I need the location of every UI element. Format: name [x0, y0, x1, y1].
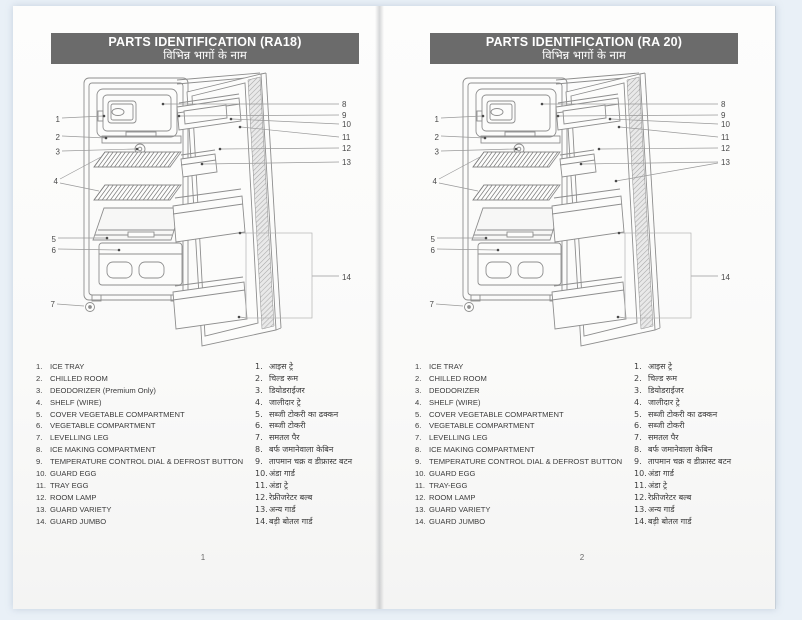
parts-list-item-label: SHELF (WIRE)	[429, 397, 480, 409]
parts-list-item-label: आइस ट्रे	[269, 361, 293, 373]
parts-list-item-label: GUARD EGG	[429, 468, 475, 480]
parts-list-hindi: 1.आइस ट्रे2.चिल्ड रूम3.डियोडराईजर4.जालीद…	[255, 361, 381, 527]
parts-list-item-number: 8.	[255, 444, 269, 456]
fridge-cabinet	[84, 78, 188, 312]
parts-list-item: 2.चिल्ड रूम	[255, 373, 381, 385]
parts-list-item-label: अन्य गार्ड	[269, 504, 296, 516]
parts-list-item-number: 6.	[415, 420, 429, 432]
parts-list-item-number: 4.	[255, 397, 269, 409]
parts-list-item-number: 9.	[255, 456, 269, 468]
parts-list-item-label: चिल्ड रूम	[648, 373, 677, 385]
parts-list-item: 9.तापमान चक्र व डीफ्रास्ट बटन	[255, 456, 381, 468]
parts-list-item: 3.डियोडराईजर	[255, 385, 381, 397]
parts-list-english: 1.ICE TRAY2.CHILLED ROOM3.DEODORIZER (Pr…	[36, 361, 252, 527]
parts-list-item-number: 3.	[255, 385, 269, 397]
parts-list-item-number: 12.	[634, 492, 648, 504]
parts-list-item: 13.GUARD VARIETY	[36, 504, 252, 516]
parts-list-item: 13.अन्य गार्ड	[255, 504, 381, 516]
parts-list-item: 12.ROOM LAMP	[36, 492, 252, 504]
svg-text:3: 3	[435, 148, 440, 157]
svg-text:5: 5	[52, 235, 57, 244]
fridge-cabinet	[463, 78, 567, 312]
svg-text:2: 2	[56, 133, 61, 142]
parts-list-item-label: DEODORIZER	[429, 385, 480, 397]
parts-list-item-label: डियोडराईजर	[648, 385, 684, 397]
parts-list-item-number: 7.	[634, 432, 648, 444]
parts-list-item-number: 3.	[634, 385, 648, 397]
manual-spread: PARTS IDENTIFICATION (RA18) विभिन्न भागो…	[13, 6, 776, 609]
parts-list-item-number: 10.	[634, 468, 648, 480]
parts-list-item-label: CHILLED ROOM	[429, 373, 487, 385]
parts-list-item-label: TRAY-EGG	[429, 480, 467, 492]
parts-list-item-number: 13.	[634, 504, 648, 516]
parts-list-item: 3.डियोडराईजर	[634, 385, 760, 397]
svg-text:10: 10	[342, 120, 351, 129]
parts-list-item-number: 5.	[415, 409, 429, 421]
parts-list-item-number: 13.	[255, 504, 269, 516]
parts-list-item: 12.ROOM LAMP	[415, 492, 631, 504]
parts-list-item-number: 11.	[36, 480, 50, 492]
fridge-door	[173, 73, 281, 346]
parts-list-item-number: 13.	[36, 504, 50, 516]
parts-list-item-label: तापमान चक्र व डीफ्रास्ट बटन	[269, 456, 352, 468]
page-number: 1	[13, 553, 393, 562]
page-title: PARTS IDENTIFICATION (RA 20)	[430, 35, 738, 49]
parts-list-item: 3.DEODORIZER	[415, 385, 631, 397]
parts-list-item-label: आइस ट्रे	[648, 361, 672, 373]
parts-list-item-number: 4.	[36, 397, 50, 409]
parts-list-item-number: 2.	[634, 373, 648, 385]
fridge-door	[552, 73, 660, 346]
parts-list-item: 7.समतल पैर	[634, 432, 760, 444]
parts-list-item-number: 10.	[255, 468, 269, 480]
svg-text:6: 6	[431, 246, 436, 255]
svg-text:7: 7	[430, 300, 435, 309]
parts-list-item-label: DEODORIZER (Premium Only)	[50, 385, 156, 397]
parts-list-item-label: TEMPERATURE CONTROL DIAL & DEFROST BUTTO…	[50, 456, 243, 468]
svg-text:8: 8	[342, 100, 347, 109]
parts-list-item-label: अंडा ट्रे	[269, 480, 288, 492]
parts-list-item: 9.तापमान चक्र व डीफ्रास्ट बटन	[634, 456, 760, 468]
parts-list-item: 6.VEGETABLE COMPARTMENT	[415, 420, 631, 432]
parts-list-item: 14.बड़ी बोतल गार्ड	[255, 516, 381, 528]
svg-text:4: 4	[54, 177, 59, 186]
page-title: PARTS IDENTIFICATION (RA18)	[51, 35, 359, 49]
parts-list-item: 5.COVER VEGETABLE COMPARTMENT	[36, 409, 252, 421]
parts-list-item: 14.GUARD JUMBO	[36, 516, 252, 528]
parts-list-item-number: 14.	[634, 516, 648, 528]
parts-list-item: 6.VEGETABLE COMPARTMENT	[36, 420, 252, 432]
parts-list-item-number: 6.	[36, 420, 50, 432]
parts-list-item-label: जालीदार ट्रे	[269, 397, 301, 409]
parts-list-english: 1.ICE TRAY2.CHILLED ROOM3.DEODORIZER4.SH…	[415, 361, 631, 527]
parts-list-item: 14.GUARD JUMBO	[415, 516, 631, 528]
parts-list-item: 10.अंडा गार्ड	[255, 468, 381, 480]
svg-text:13: 13	[721, 158, 730, 167]
parts-list-item: 7.LEVELLING LEG	[415, 432, 631, 444]
page-header: PARTS IDENTIFICATION (RA 20) विभिन्न भाग…	[430, 33, 738, 64]
parts-list-item-label: समतल पैर	[269, 432, 300, 444]
parts-list-item-number: 3.	[36, 385, 50, 397]
parts-list-item-label: तापमान चक्र व डीफ्रास्ट बटन	[648, 456, 731, 468]
parts-list-item-label: ICE MAKING COMPARTMENT	[429, 444, 535, 456]
svg-text:14: 14	[721, 273, 730, 282]
parts-list-item-number: 1.	[36, 361, 50, 373]
parts-list-item-number: 5.	[255, 409, 269, 421]
parts-list-item-number: 10.	[415, 468, 429, 480]
svg-text:3: 3	[56, 148, 61, 157]
parts-list-item-number: 10.	[36, 468, 50, 480]
parts-list-item: 2.चिल्ड रूम	[634, 373, 760, 385]
parts-list-item-label: अंडा ट्रे	[648, 480, 667, 492]
parts-list-item: 12.रेफ्रीजरेटर बल्ब	[634, 492, 760, 504]
parts-list-item: 9.TEMPERATURE CONTROL DIAL & DEFROST BUT…	[36, 456, 252, 468]
parts-list-item-number: 6.	[634, 420, 648, 432]
parts-list-item-label: GUARD VARIETY	[429, 504, 490, 516]
parts-list-item-number: 5.	[634, 409, 648, 421]
parts-list-item: 1.आइस ट्रे	[634, 361, 760, 373]
svg-text:9: 9	[342, 111, 347, 120]
parts-list-item: 6.सब्जी टोकरी	[255, 420, 381, 432]
parts-list-item: 11.TRAY-EGG	[415, 480, 631, 492]
parts-list-item-label: डियोडराईजर	[269, 385, 305, 397]
fridge-diagram: 1 2 3 4 5 6 7 8 9 10 11 12 13 14	[40, 62, 360, 354]
svg-text:1: 1	[435, 115, 440, 124]
parts-list-item: 3.DEODORIZER (Premium Only)	[36, 385, 252, 397]
page-header: PARTS IDENTIFICATION (RA18) विभिन्न भागो…	[51, 33, 359, 64]
parts-list-item: 8.बर्फ जमानेवाला केबिन	[634, 444, 760, 456]
page-fold	[375, 6, 384, 609]
parts-list-item: 2.CHILLED ROOM	[36, 373, 252, 385]
parts-list-item-label: बड़ी बोतल गार्ड	[648, 516, 692, 528]
parts-list-item-number: 12.	[36, 492, 50, 504]
svg-text:11: 11	[342, 133, 351, 142]
parts-list-item-label: VEGETABLE COMPARTMENT	[429, 420, 535, 432]
parts-list-item-number: 14.	[36, 516, 50, 528]
parts-list-item: 4.SHELF (WIRE)	[36, 397, 252, 409]
svg-text:6: 6	[52, 246, 57, 255]
parts-list-item: 13.अन्य गार्ड	[634, 504, 760, 516]
parts-list-item-label: COVER VEGETABLE COMPARTMENT	[429, 409, 564, 421]
parts-list-item: 4.जालीदार ट्रे	[255, 397, 381, 409]
refrigerator-diagram-svg: 1 2 3 4 5 6 7 8 9 10 11 12 13 14	[40, 62, 360, 354]
page-number: 2	[392, 553, 772, 562]
parts-list-item-label: जालीदार ट्रे	[648, 397, 680, 409]
parts-list-item-label: CHILLED ROOM	[50, 373, 108, 385]
parts-list-item: 10.अंडा गार्ड	[634, 468, 760, 480]
parts-list-item-number: 9.	[415, 456, 429, 468]
parts-list-item: 12.रेफ्रीजरेटर बल्ब	[255, 492, 381, 504]
svg-text:14: 14	[342, 273, 351, 282]
parts-list-item-label: COVER VEGETABLE COMPARTMENT	[50, 409, 185, 421]
svg-text:4: 4	[433, 177, 438, 186]
parts-list-item: 14.बड़ी बोतल गार्ड	[634, 516, 760, 528]
svg-text:12: 12	[342, 144, 351, 153]
parts-list-item-label: ICE TRAY	[50, 361, 84, 373]
parts-list-item-label: सब्जी टोकरी का ढक्कन	[648, 409, 717, 421]
parts-list-item-number: 6.	[255, 420, 269, 432]
parts-list-item: 13.GUARD VARIETY	[415, 504, 631, 516]
parts-list-item: 1.ICE TRAY	[415, 361, 631, 373]
parts-list-item-number: 14.	[415, 516, 429, 528]
parts-list-item-number: 12.	[255, 492, 269, 504]
parts-list-item-label: VEGETABLE COMPARTMENT	[50, 420, 156, 432]
svg-text:5: 5	[431, 235, 436, 244]
parts-list-item-number: 1.	[255, 361, 269, 373]
parts-list-item-number: 8.	[415, 444, 429, 456]
page-subtitle-hindi: विभिन्न भागों के नाम	[51, 49, 359, 62]
parts-list-item: 5.सब्जी टोकरी का ढक्कन	[634, 409, 760, 421]
parts-list-item: 7.LEVELLING LEG	[36, 432, 252, 444]
parts-list-item-number: 1.	[415, 361, 429, 373]
parts-list-item-label: LEVELLING LEG	[429, 432, 488, 444]
parts-list-item-number: 11.	[634, 480, 648, 492]
parts-list-item: 6.सब्जी टोकरी	[634, 420, 760, 432]
parts-list-item: 4.SHELF (WIRE)	[415, 397, 631, 409]
parts-list-item: 1.ICE TRAY	[36, 361, 252, 373]
parts-list-item-number: 13.	[415, 504, 429, 516]
parts-list-item: 10.GUARD EGG	[415, 468, 631, 480]
svg-text:12: 12	[721, 144, 730, 153]
parts-list-item-number: 4.	[634, 397, 648, 409]
parts-list-item-number: 8.	[634, 444, 648, 456]
parts-list-item-number: 11.	[415, 480, 429, 492]
svg-text:1: 1	[56, 115, 61, 124]
parts-list-item: 11.TRAY EGG	[36, 480, 252, 492]
svg-text:8: 8	[721, 100, 726, 109]
parts-list-item-label: TRAY EGG	[50, 480, 89, 492]
parts-list-item-label: सब्जी टोकरी	[648, 420, 684, 432]
parts-list-item-number: 14.	[255, 516, 269, 528]
parts-list-item-number: 7.	[36, 432, 50, 444]
parts-list-item-label: अन्य गार्ड	[648, 504, 675, 516]
parts-list-item-number: 8.	[36, 444, 50, 456]
parts-list-hindi: 1.आइस ट्रे2.चिल्ड रूम3.डियोडराईजर4.जालीद…	[634, 361, 760, 527]
parts-list-item-label: GUARD EGG	[50, 468, 96, 480]
scanned-manual-spread: { "colors": { "canvas_bg": "#e9f0f7", "p…	[0, 0, 802, 620]
parts-list-item-number: 9.	[634, 456, 648, 468]
refrigerator-diagram-svg: 1 2 3 4 5 6 7 8 9 10 11 12 13 14	[419, 62, 739, 354]
parts-list-item: 9.TEMPERATURE CONTROL DIAL & DEFROST BUT…	[415, 456, 631, 468]
parts-list-item: 5.COVER VEGETABLE COMPARTMENT	[415, 409, 631, 421]
parts-list-item: 7.समतल पैर	[255, 432, 381, 444]
parts-list-item-number: 7.	[415, 432, 429, 444]
parts-list-item: 8.ICE MAKING COMPARTMENT	[415, 444, 631, 456]
svg-text:11: 11	[721, 133, 730, 142]
parts-list-item-label: ICE TRAY	[429, 361, 463, 373]
parts-list-item: 10.GUARD EGG	[36, 468, 252, 480]
parts-list-item: 8.बर्फ जमानेवाला केबिन	[255, 444, 381, 456]
parts-list-item-number: 12.	[415, 492, 429, 504]
parts-list-item-number: 11.	[255, 480, 269, 492]
parts-list-item-label: SHELF (WIRE)	[50, 397, 101, 409]
svg-text:2: 2	[435, 133, 440, 142]
parts-list-item-number: 7.	[255, 432, 269, 444]
parts-list-item: 11.अंडा ट्रे	[255, 480, 381, 492]
parts-list-item-label: ROOM LAMP	[50, 492, 96, 504]
parts-list-item-label: बर्फ जमानेवाला केबिन	[648, 444, 712, 456]
parts-list-item-label: बड़ी बोतल गार्ड	[269, 516, 313, 528]
parts-list-item: 2.CHILLED ROOM	[415, 373, 631, 385]
svg-text:7: 7	[51, 300, 56, 309]
parts-list-item-number: 5.	[36, 409, 50, 421]
parts-list-item-number: 3.	[415, 385, 429, 397]
parts-list-item-number: 2.	[415, 373, 429, 385]
parts-list-item-label: सब्जी टोकरी का ढक्कन	[269, 409, 338, 421]
parts-list-item-label: TEMPERATURE CONTROL DIAL & DEFROST BUTTO…	[429, 456, 622, 468]
parts-list-item-label: सब्जी टोकरी	[269, 420, 305, 432]
manual-page-1: PARTS IDENTIFICATION (RA18) विभिन्न भागो…	[13, 6, 393, 609]
parts-list-item-number: 2.	[36, 373, 50, 385]
parts-list-item-label: रेफ्रीजरेटर बल्ब	[648, 492, 691, 504]
svg-text:10: 10	[721, 120, 730, 129]
parts-list-item-label: अंडा गार्ड	[269, 468, 295, 480]
parts-list-item: 8.ICE MAKING COMPARTMENT	[36, 444, 252, 456]
parts-list-item-label: समतल पैर	[648, 432, 679, 444]
parts-list-item-label: अंडा गार्ड	[648, 468, 674, 480]
parts-list-item-label: GUARD VARIETY	[50, 504, 111, 516]
parts-list-item-label: बर्फ जमानेवाला केबिन	[269, 444, 333, 456]
parts-list-item-label: LEVELLING LEG	[50, 432, 109, 444]
parts-list-item-number: 1.	[634, 361, 648, 373]
page-subtitle-hindi: विभिन्न भागों के नाम	[430, 49, 738, 62]
parts-list-item-number: 4.	[415, 397, 429, 409]
parts-list-item-label: चिल्ड रूम	[269, 373, 298, 385]
parts-list-item-label: रेफ्रीजरेटर बल्ब	[269, 492, 312, 504]
parts-list-item-number: 2.	[255, 373, 269, 385]
fridge-diagram: 1 2 3 4 5 6 7 8 9 10 11 12 13 14	[419, 62, 739, 354]
parts-list-item: 11.अंडा ट्रे	[634, 480, 760, 492]
parts-list-item-label: ROOM LAMP	[429, 492, 475, 504]
parts-list-item-label: GUARD JUMBO	[50, 516, 106, 528]
manual-page-2: PARTS IDENTIFICATION (RA 20) विभिन्न भाग…	[392, 6, 772, 609]
svg-text:9: 9	[721, 111, 726, 120]
parts-list-item-label: ICE MAKING COMPARTMENT	[50, 444, 156, 456]
parts-list-item: 1.आइस ट्रे	[255, 361, 381, 373]
parts-list-item: 5.सब्जी टोकरी का ढक्कन	[255, 409, 381, 421]
parts-list-item: 4.जालीदार ट्रे	[634, 397, 760, 409]
svg-text:13: 13	[342, 158, 351, 167]
parts-list-item-label: GUARD JUMBO	[429, 516, 485, 528]
parts-list-item-number: 9.	[36, 456, 50, 468]
